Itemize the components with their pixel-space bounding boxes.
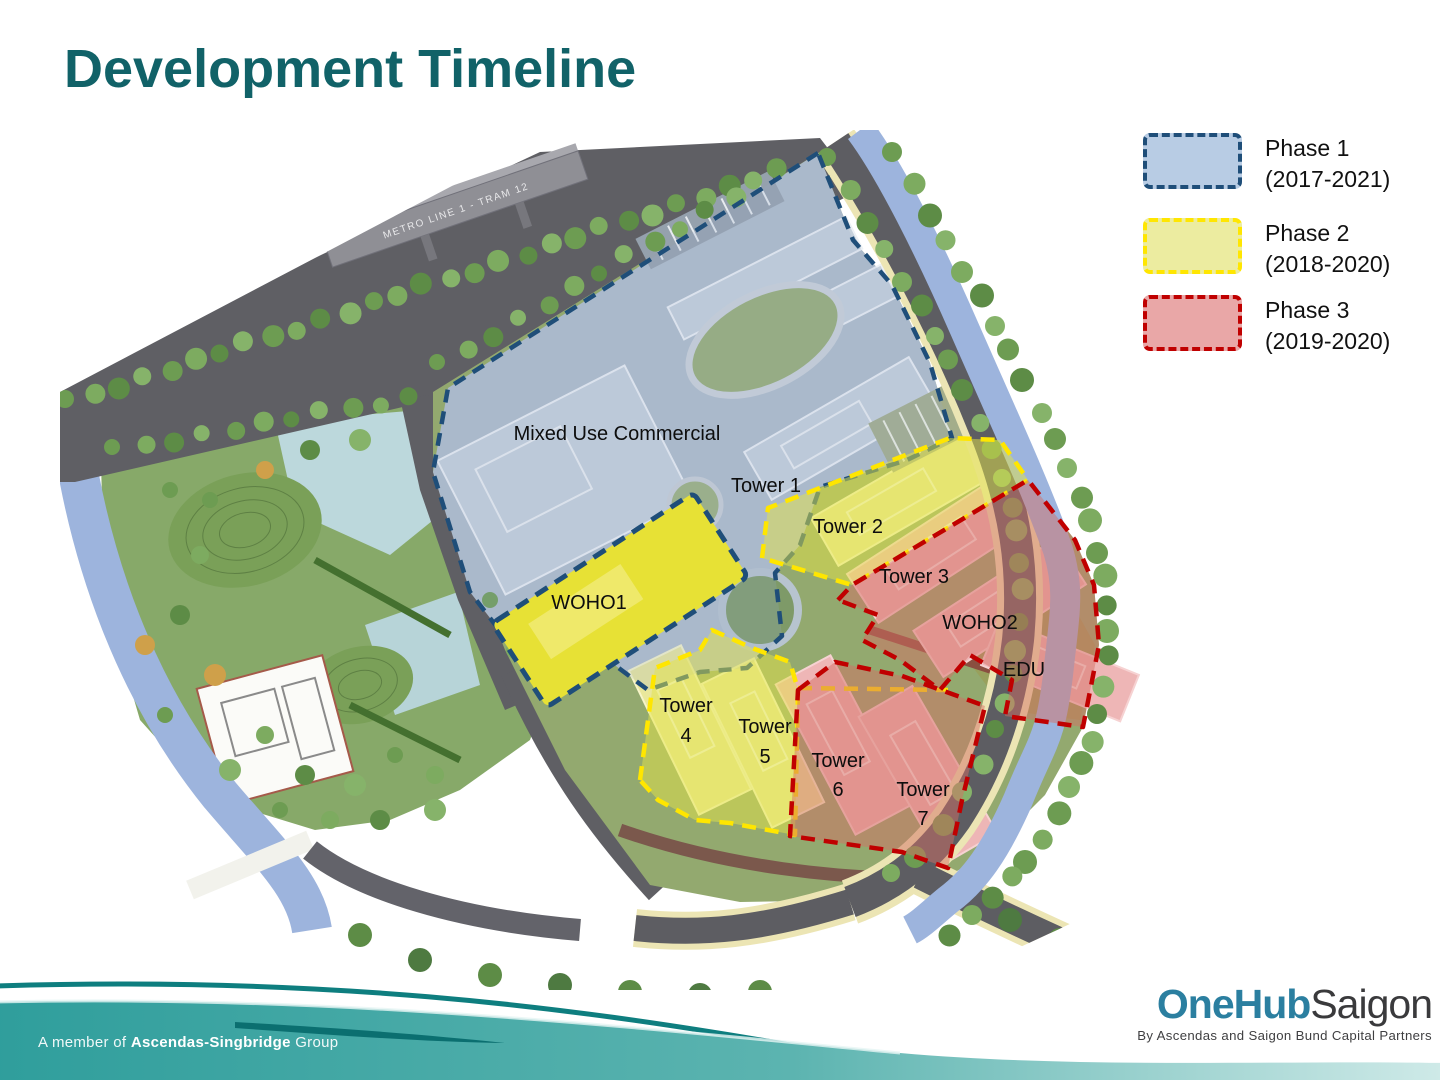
svg-text:Tower: Tower bbox=[659, 695, 713, 717]
label-edu: EDU bbox=[1003, 659, 1045, 681]
legend-swatch-phase2 bbox=[1143, 218, 1242, 274]
label-woho1: WOHO1 bbox=[551, 592, 627, 614]
label-woho2: WOHO2 bbox=[942, 612, 1018, 634]
label-mixed-use: Mixed Use Commercial bbox=[514, 423, 721, 445]
label-tower-1: Tower 1 bbox=[731, 475, 801, 497]
logo-saigon: Saigon bbox=[1310, 981, 1432, 1027]
slide: Development Timeline bbox=[0, 0, 1440, 1080]
legend-swatch-phase3 bbox=[1143, 295, 1242, 351]
svg-text:Tower: Tower bbox=[738, 716, 792, 738]
svg-text:5: 5 bbox=[759, 746, 770, 768]
south-west-road bbox=[310, 850, 580, 930]
site-plan-map: METRO LINE 1 - TRAM 12 bbox=[60, 130, 1240, 990]
label-tower-2: Tower 2 bbox=[813, 516, 883, 538]
svg-text:Tower: Tower bbox=[811, 750, 865, 772]
svg-text:Tower: Tower bbox=[896, 779, 950, 801]
logo-onehub: OneHub bbox=[1157, 981, 1310, 1027]
label-tower-3: Tower 3 bbox=[879, 566, 949, 588]
legend-item-phase1: Phase 1 (2017-2021) bbox=[1265, 133, 1390, 195]
page-title: Development Timeline bbox=[64, 38, 636, 100]
company-logo: OneHubSaigon By Ascendas and Saigon Bund… bbox=[1137, 984, 1432, 1043]
svg-text:4: 4 bbox=[680, 725, 691, 747]
legend-item-phase3: Phase 3 (2019-2020) bbox=[1265, 295, 1390, 357]
svg-text:7: 7 bbox=[917, 808, 928, 830]
legend-item-phase2: Phase 2 (2018-2020) bbox=[1265, 218, 1390, 280]
logo-tagline: By Ascendas and Saigon Bund Capital Part… bbox=[1137, 1028, 1432, 1043]
legend-swatch-phase1 bbox=[1143, 133, 1242, 189]
membership-note: A member of Ascendas-Singbridge Group bbox=[38, 1034, 338, 1051]
svg-text:6: 6 bbox=[832, 779, 843, 801]
